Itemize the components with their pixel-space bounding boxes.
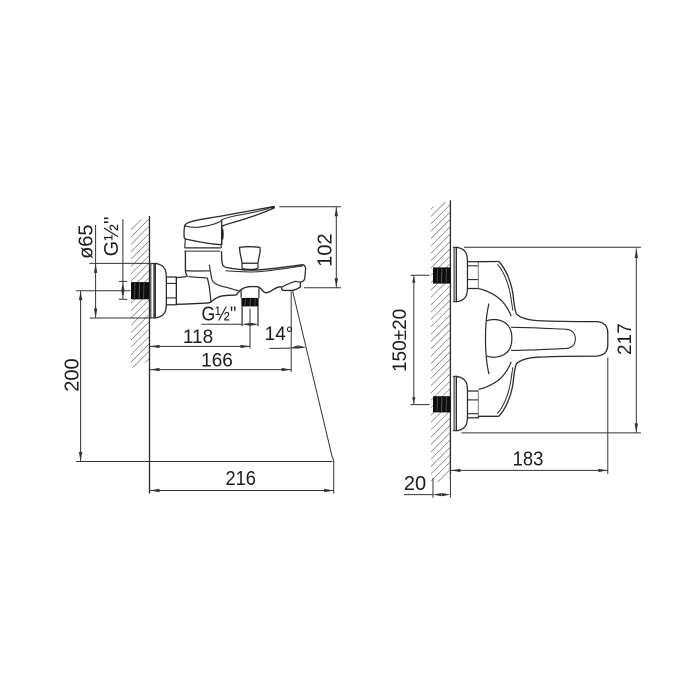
svg-text:150±20: 150±20	[390, 309, 411, 372]
svg-text:ø65: ø65	[75, 224, 97, 258]
svg-text:217: 217	[615, 323, 636, 355]
svg-text:G½'': G½''	[101, 216, 123, 256]
svg-text:14°: 14°	[265, 324, 294, 345]
svg-text:200: 200	[61, 358, 83, 391]
svg-text:166: 166	[201, 351, 233, 372]
svg-text:216: 216	[226, 468, 256, 490]
svg-text:118: 118	[183, 327, 213, 348]
svg-text:20: 20	[404, 473, 426, 495]
svg-text:G½'': G½''	[201, 302, 236, 324]
svg-text:183: 183	[513, 449, 544, 471]
svg-text:102: 102	[314, 233, 336, 266]
